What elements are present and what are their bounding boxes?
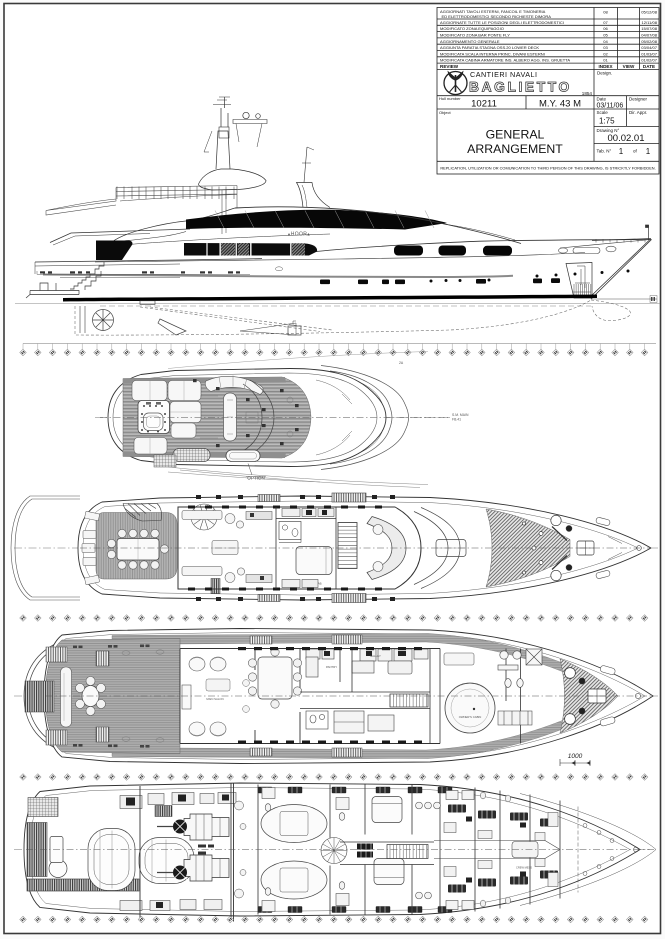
svg-text:AGGIORNAMENTO GENERALE: AGGIORNAMENTO GENERALE [440, 39, 500, 44]
svg-text:REVIEW: REVIEW [440, 64, 459, 69]
svg-text:Dir. Appr.: Dir. Appr. [629, 110, 647, 115]
svg-text:1854: 1854 [582, 91, 593, 96]
svg-text:1: 1 [619, 147, 624, 156]
svg-text:04: 04 [603, 39, 608, 44]
svg-text:01/02/07: 01/02/07 [641, 58, 658, 63]
svg-text:01/03/07: 01/03/07 [641, 51, 658, 56]
svg-text:BAGLIETTO: BAGLIETTO [469, 80, 572, 95]
svg-text:CREW MESS: CREW MESS [516, 866, 532, 870]
svg-text:AGGIORNATE TUTTE LE POSIZIONI: AGGIORNATE TUTTE LE POSIZIONI DEGLI ELET… [440, 20, 564, 25]
svg-text:Date: Date [597, 97, 607, 102]
svg-text:Object: Object [439, 110, 451, 115]
svg-text:MODIFICATO ZONA BAR PONTE FLY: MODIFICATO ZONA BAR PONTE FLY [440, 33, 510, 38]
svg-text:INDEX: INDEX [598, 64, 613, 69]
svg-text:02: 02 [603, 51, 608, 56]
svg-text:03: 03 [603, 45, 608, 50]
svg-text:S.M. MAIN: S.M. MAIN [452, 413, 469, 417]
svg-text:07: 07 [603, 20, 608, 25]
svg-text:FB.41: FB.41 [452, 418, 461, 422]
svg-text:06: 06 [603, 26, 608, 31]
svg-text:Scale: Scale [597, 110, 609, 115]
svg-text:1: 1 [646, 147, 651, 156]
svg-text:2A: 2A [399, 361, 404, 365]
svg-text:Designer: Designer [629, 97, 648, 102]
svg-text:▴HOOR▴: ▴HOOR▴ [288, 232, 311, 238]
svg-text:CANTIERI NAVALI: CANTIERI NAVALI [470, 70, 538, 79]
svg-text:MODIFICATA CABINA ARMATORE INS: MODIFICATA CABINA ARMATORE INS. ALBERO A… [440, 58, 570, 63]
svg-text:Design.: Design. [597, 71, 612, 76]
svg-text:REPLICATION, UTILIZATION OR CO: REPLICATION, UTILIZATION OR COMUNICATION… [440, 166, 655, 171]
svg-text:DATE: DATE [643, 64, 655, 69]
svg-text:Hull number: Hull number [439, 96, 461, 101]
svg-text:MAIN SALON: MAIN SALON [206, 697, 223, 701]
svg-text:M.Y. 43 M: M.Y. 43 M [539, 99, 581, 110]
svg-text:1000: 1000 [568, 753, 583, 760]
svg-text:05/12/08: 05/12/08 [641, 10, 658, 15]
svg-text:01: 01 [603, 58, 608, 63]
svg-text:OWNER’S CABIN: OWNER’S CABIN [459, 715, 482, 719]
svg-text:03/04/07: 03/04/07 [641, 45, 658, 50]
svg-text:05/02/08: 05/02/08 [641, 39, 658, 44]
svg-text:MODIFICATO ZONA EQUIPAGGIO: MODIFICATO ZONA EQUIPAGGIO [440, 26, 504, 31]
svg-text:1:75: 1:75 [599, 117, 615, 126]
svg-text:12/11/08: 12/11/08 [642, 20, 658, 25]
svg-text:ED ELETTRODOMESTICI SECONDO RI: ED ELETTRODOMESTICI SECONDO RICHIESTE DI… [442, 14, 552, 19]
svg-text:GENERAL: GENERAL [486, 128, 545, 142]
svg-text:MODIFICATA SCALA INTERNA PRINC: MODIFICATA SCALA INTERNA PRINC. DIVANI E… [440, 51, 545, 56]
svg-text:ARRANGEMENT: ARRANGEMENT [467, 142, 563, 156]
svg-text:PANTRY: PANTRY [326, 665, 337, 669]
svg-text:08: 08 [603, 10, 608, 15]
svg-text:10211: 10211 [471, 99, 497, 110]
svg-text:Tab. N°: Tab. N° [597, 149, 612, 154]
svg-text:03/11/06: 03/11/06 [597, 103, 624, 110]
svg-text:04/07/08: 04/07/08 [641, 33, 658, 38]
svg-text:VIEW: VIEW [623, 64, 635, 69]
svg-text:05: 05 [603, 33, 608, 38]
svg-text:00.02.01: 00.02.01 [608, 133, 645, 144]
svg-text:GALLEY: GALLEY [370, 654, 381, 658]
svg-text:15/07/08: 15/07/08 [641, 26, 658, 31]
svg-text:AGGIUNTA PARATIA STAGNA OSS.20: AGGIUNTA PARATIA STAGNA OSS.20 LOWER DEC… [440, 45, 539, 50]
